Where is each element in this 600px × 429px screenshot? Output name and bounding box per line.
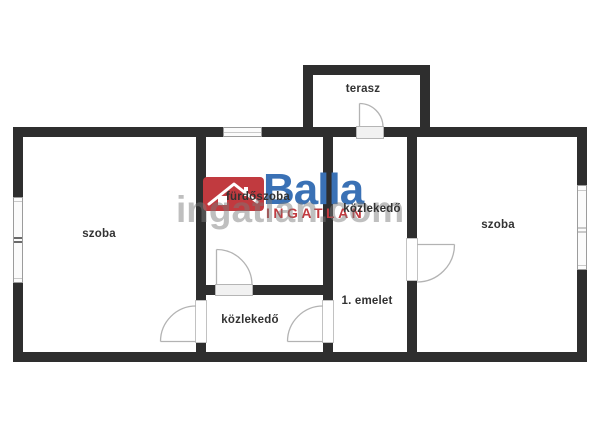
room-label-room-left: szoba (82, 228, 116, 240)
room-label-hallway-upper: közlekedő (343, 203, 400, 215)
room-label-room-right: szoba (481, 219, 515, 231)
floor-plan-canvas: Balla INGATLAN ingatlan.com terasz fürdő… (0, 0, 600, 429)
hallway-door-arc (288, 306, 324, 342)
room-label-bathroom: fürdőszoba (226, 191, 290, 203)
right-room-door-arc (417, 245, 455, 283)
room-label-terrace: terasz (346, 83, 380, 95)
room-label-hallway-lower: közlekedő (221, 314, 278, 326)
bathroom-door-arc (217, 250, 253, 286)
left-room-door-arc (161, 306, 197, 342)
room-label-floor-note: 1. emelet (341, 295, 392, 307)
terrace-door-arc (360, 104, 384, 128)
